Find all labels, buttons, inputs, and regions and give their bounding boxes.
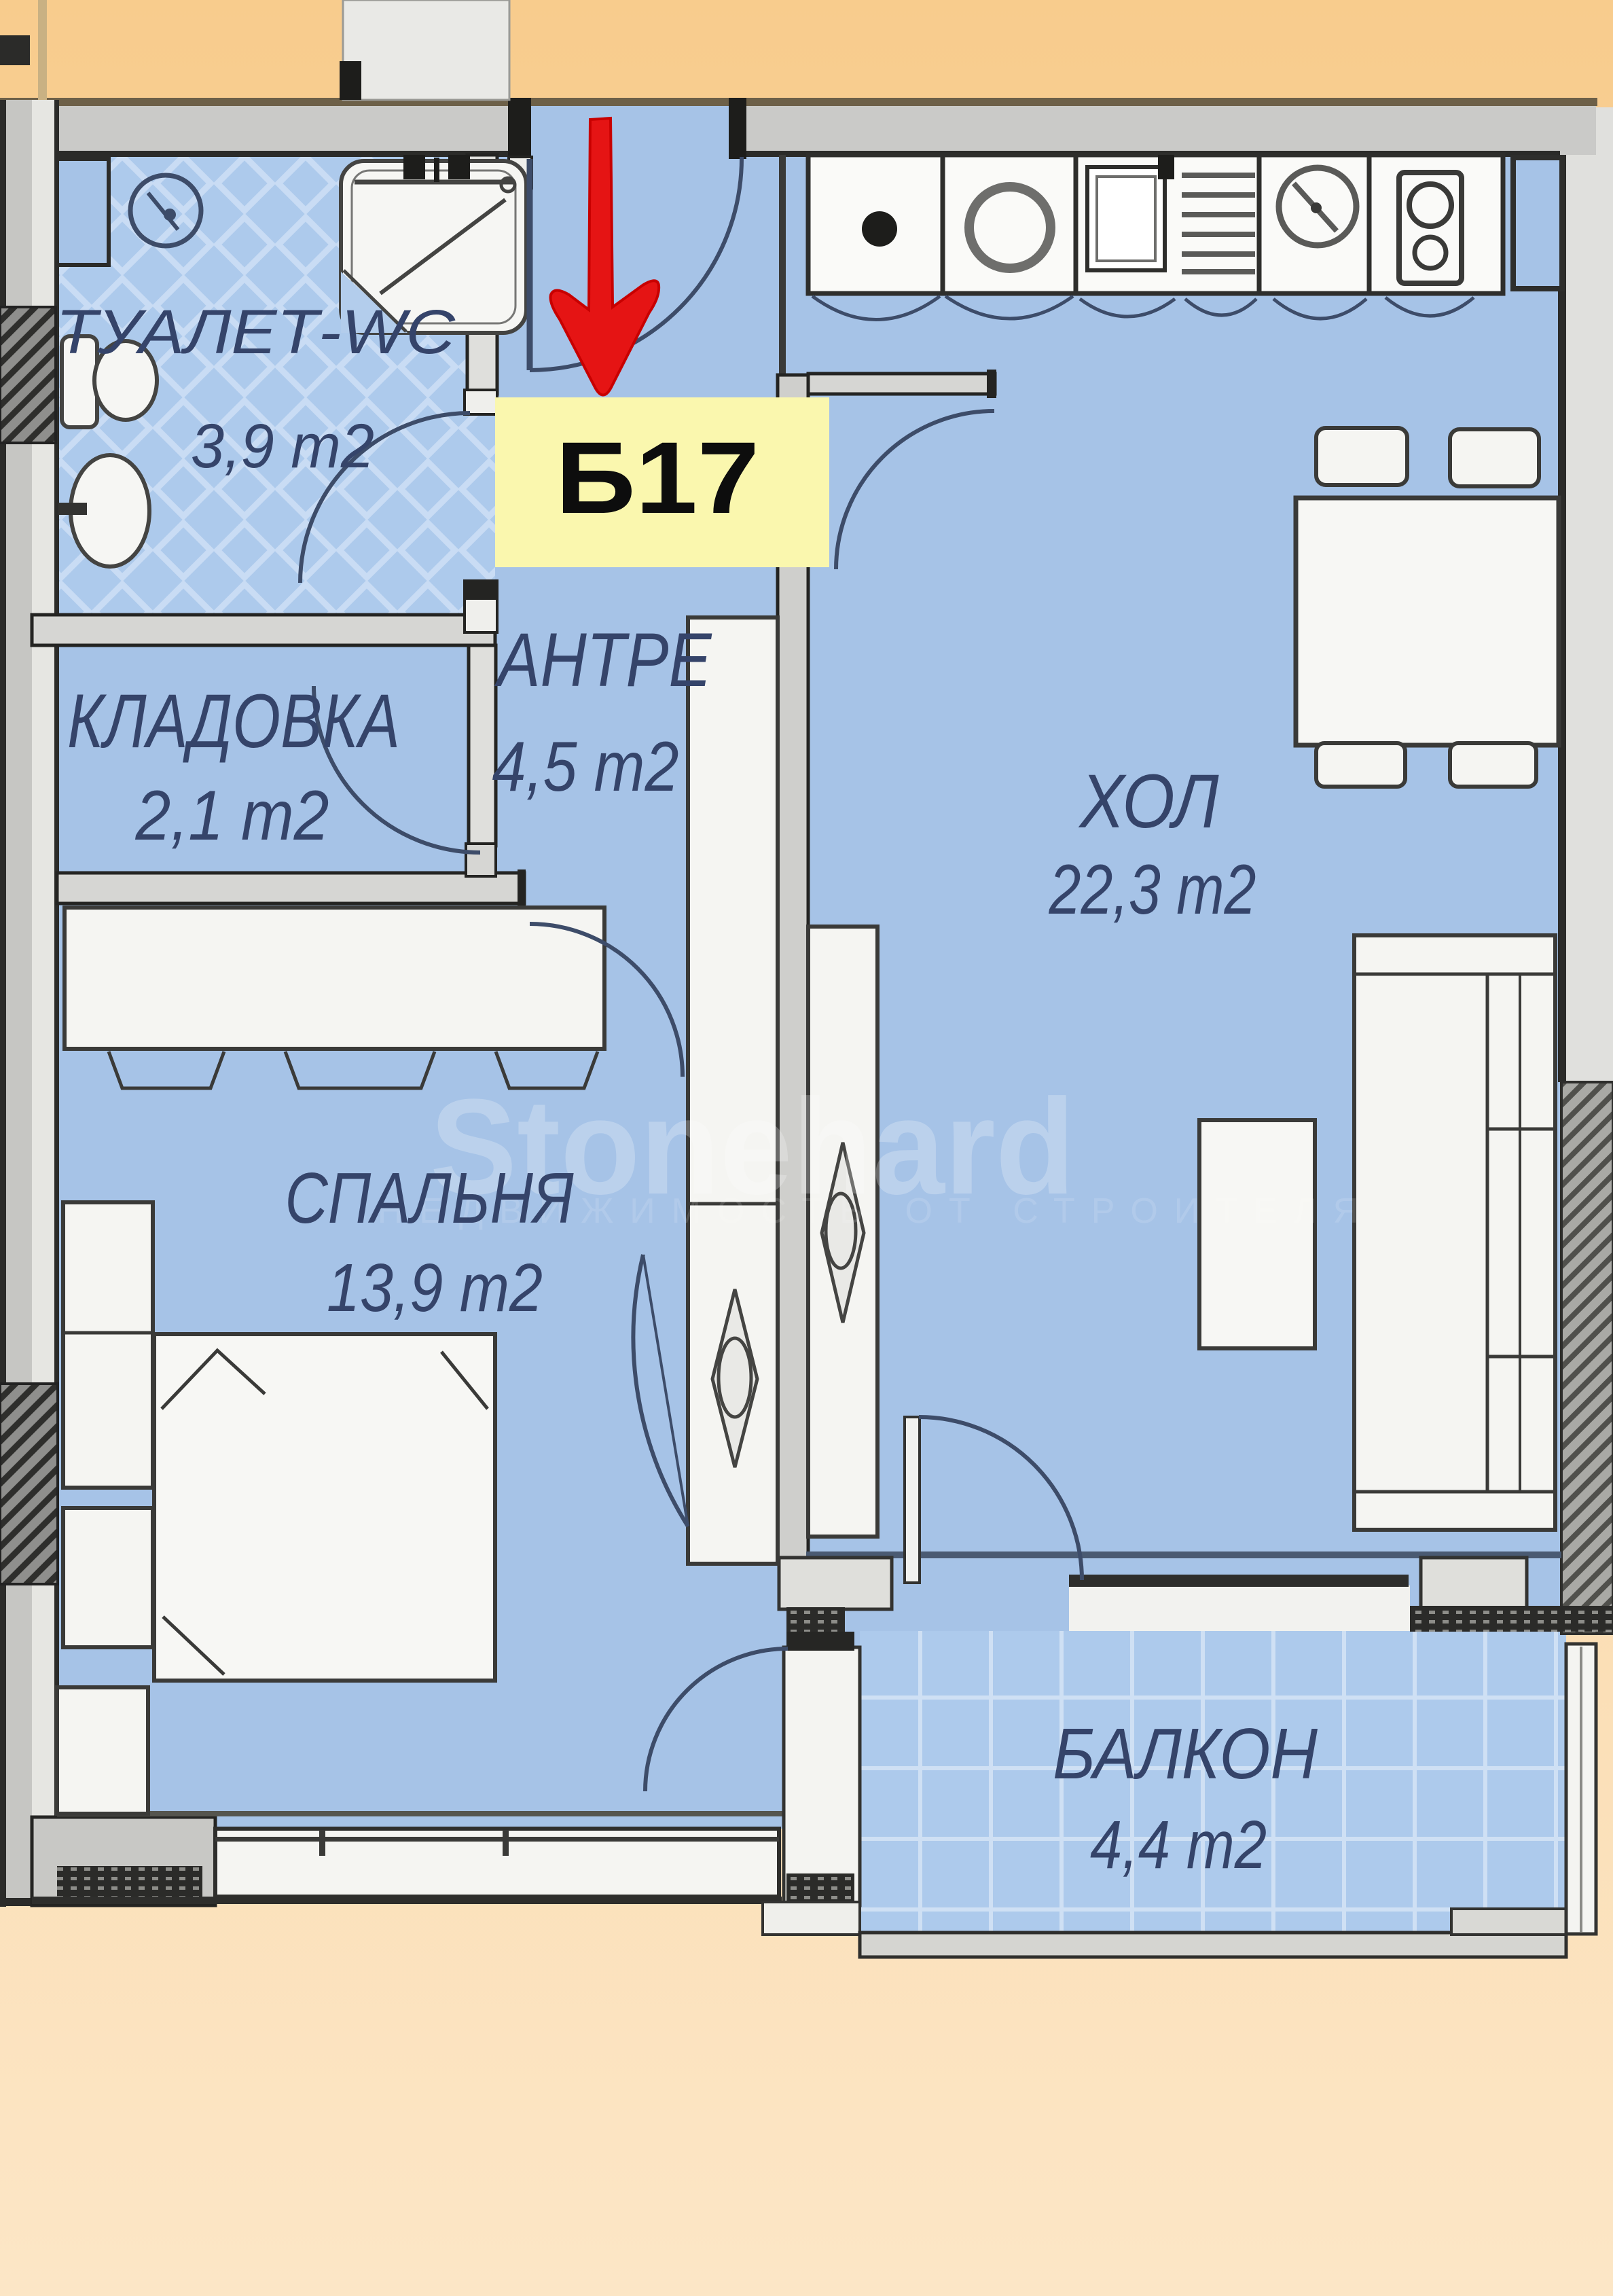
svg-text:3,9 m2: 3,9 m2 xyxy=(191,412,374,481)
svg-text:ТУАЛЕТ-WC: ТУАЛЕТ-WC xyxy=(56,298,456,367)
svg-text:4,4 m2: 4,4 m2 xyxy=(1090,1807,1267,1883)
svg-text:КЛАДОВКА: КЛАДОВКА xyxy=(67,679,400,764)
svg-text:4,5 m2: 4,5 m2 xyxy=(492,728,679,806)
svg-text:Б17: Б17 xyxy=(556,420,759,535)
svg-text:22,3 m2: 22,3 m2 xyxy=(1049,850,1256,929)
svg-text:БАЛКОН: БАЛКОН xyxy=(1053,1714,1318,1794)
svg-text:АНТРЕ: АНТРЕ xyxy=(494,617,712,702)
svg-text:13,9 m2: 13,9 m2 xyxy=(327,1250,543,1326)
svg-text:СПАЛЬНЯ: СПАЛЬНЯ xyxy=(285,1158,575,1238)
svg-text:ХОЛ: ХОЛ xyxy=(1078,759,1219,844)
svg-text:2,1 m2: 2,1 m2 xyxy=(135,776,329,855)
